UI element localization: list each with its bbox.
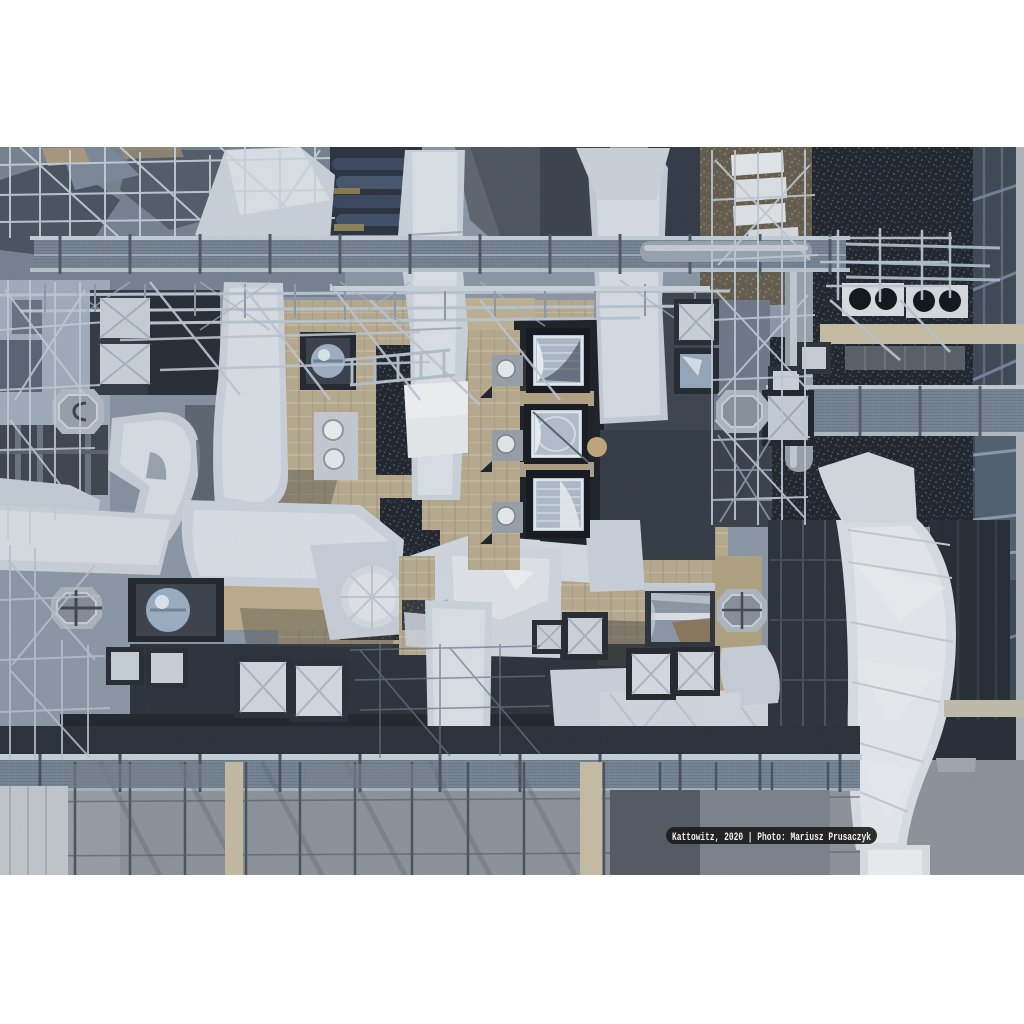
- svg-text:Kattowitz, 2020 | Photo: Mariu: Kattowitz, 2020 | Photo: Mariusz Prusacz…: [672, 832, 871, 844]
